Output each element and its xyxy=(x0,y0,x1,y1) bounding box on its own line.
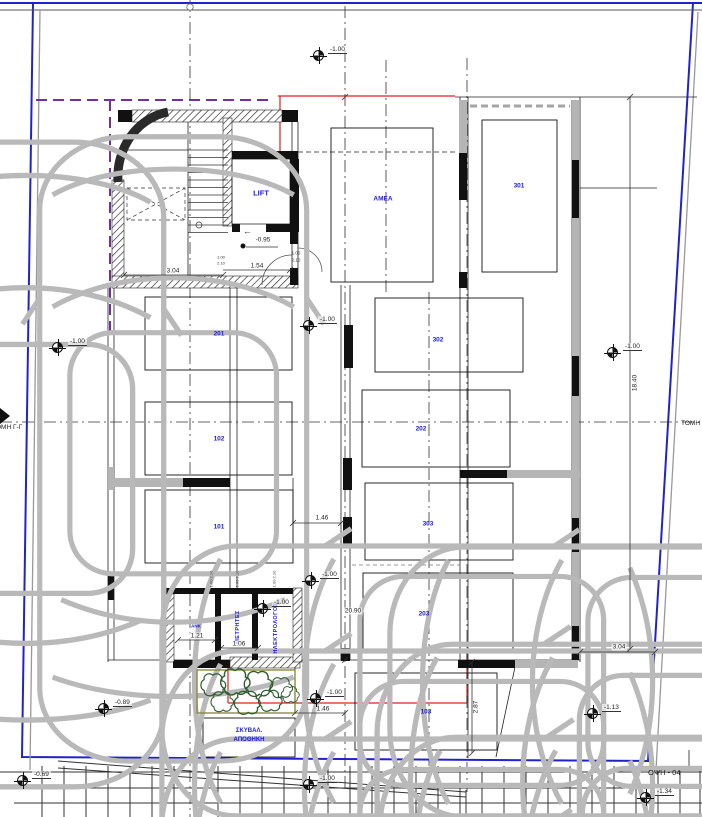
dim-20-90: 20.90 xyxy=(344,608,362,615)
staircase xyxy=(127,150,228,233)
dim-1-06: 1.06 xyxy=(232,641,247,648)
door-size-height-2: 2.10 xyxy=(217,261,225,266)
level-marker xyxy=(607,347,618,358)
level-marker xyxy=(17,775,28,786)
elevation-ref-label: ΟΨΗ - 04 xyxy=(648,768,681,777)
door-tag-2: 1.00 2.10 xyxy=(235,571,240,588)
level-value: -1.00 xyxy=(272,599,291,607)
level-marker xyxy=(305,575,316,586)
level-marker xyxy=(257,603,268,614)
stall-label-102: 102 xyxy=(214,436,225,443)
dim-3-04: 3.04 xyxy=(166,268,181,275)
level-value: -1.00 xyxy=(623,343,642,351)
dashed-overhang-lines xyxy=(298,106,570,565)
level-marker xyxy=(310,693,321,704)
level-value: -1.00 xyxy=(68,338,87,346)
dim-1-54: 1.54 xyxy=(250,263,265,270)
level-marker xyxy=(303,779,314,790)
stall-label-amea: AMEA xyxy=(373,196,392,203)
level-value: -1.00 xyxy=(320,571,339,579)
level-marker xyxy=(98,703,109,714)
level-value: -0.69 xyxy=(32,771,51,779)
centerlines xyxy=(0,0,702,817)
stall-label-103: 103 xyxy=(421,709,432,716)
level-0-95: -0.95 xyxy=(255,237,272,244)
door-size-width: 1.00 xyxy=(292,251,301,256)
dim-1-46-b: 1.46 xyxy=(316,706,331,713)
level-marker xyxy=(303,320,314,331)
level-marker xyxy=(640,792,651,803)
stall-label-201: 201 xyxy=(214,331,225,338)
stall-label-302: 302 xyxy=(433,337,444,344)
level-marker xyxy=(52,342,63,353)
level-value: -1.34 xyxy=(655,788,674,796)
door-size-width-2: 1.00 xyxy=(217,255,225,260)
stall-label-203: 203 xyxy=(419,611,430,618)
level-value: -1.13 xyxy=(602,704,621,712)
dim-1-46-a: 1.46 xyxy=(315,515,330,522)
level-marker xyxy=(587,708,598,719)
garbage-store-label-2: ΑΠΟΘΗΚΗ xyxy=(234,737,265,743)
meters-room-label: ΜΕΤΡΗΤΕΣ xyxy=(235,610,241,644)
level-value: -1.00 xyxy=(325,689,344,697)
section-label-right: ΤΟΜΗ xyxy=(681,420,700,427)
stall-label-202: 202 xyxy=(416,426,427,433)
lift-label: LIFT xyxy=(253,189,269,198)
plan-linework xyxy=(0,0,702,817)
lift-entry-arrow-icon: ← xyxy=(243,227,252,236)
dim-1-21: 1.21 xyxy=(190,633,205,640)
door-tag-1: 1.00 2.10 xyxy=(209,571,214,588)
site-boundary xyxy=(0,3,702,770)
level-marker xyxy=(313,50,324,61)
level-value: -0.89 xyxy=(113,699,132,707)
dim-2-87: 2.87 xyxy=(473,701,480,714)
door-tag-3: 1.00 2.10 xyxy=(272,571,277,588)
door-threshold-dot xyxy=(241,244,246,249)
door-size-height: 2.10 xyxy=(292,258,301,263)
section-label-left: ΟΜΗ Γ-Γ xyxy=(0,424,22,431)
level-value: -1.00 xyxy=(328,46,347,54)
garbage-store-label-1: ΣΚΥΒΑΛ. xyxy=(236,728,262,734)
store-room-label: ΑΝΚ xyxy=(191,624,201,629)
walls xyxy=(108,100,580,668)
grid-bubble xyxy=(187,4,193,10)
electrical-room-label: ΗΛΕΚΤΡΟΛΟΓΟΣ xyxy=(273,602,279,653)
dim-18-40: 18.40 xyxy=(632,375,639,391)
stall-label-101: 101 xyxy=(214,524,225,531)
level-value: -1.00 xyxy=(318,775,337,783)
stall-label-303: 303 xyxy=(423,521,434,528)
floor-plan: 201 102 101 AMEA 301 302 202 303 203 103… xyxy=(0,0,702,817)
level-value: -1.00 xyxy=(318,316,337,324)
dim-3-04-b: 3.04 xyxy=(612,644,627,651)
stall-label-301: 301 xyxy=(514,183,525,190)
